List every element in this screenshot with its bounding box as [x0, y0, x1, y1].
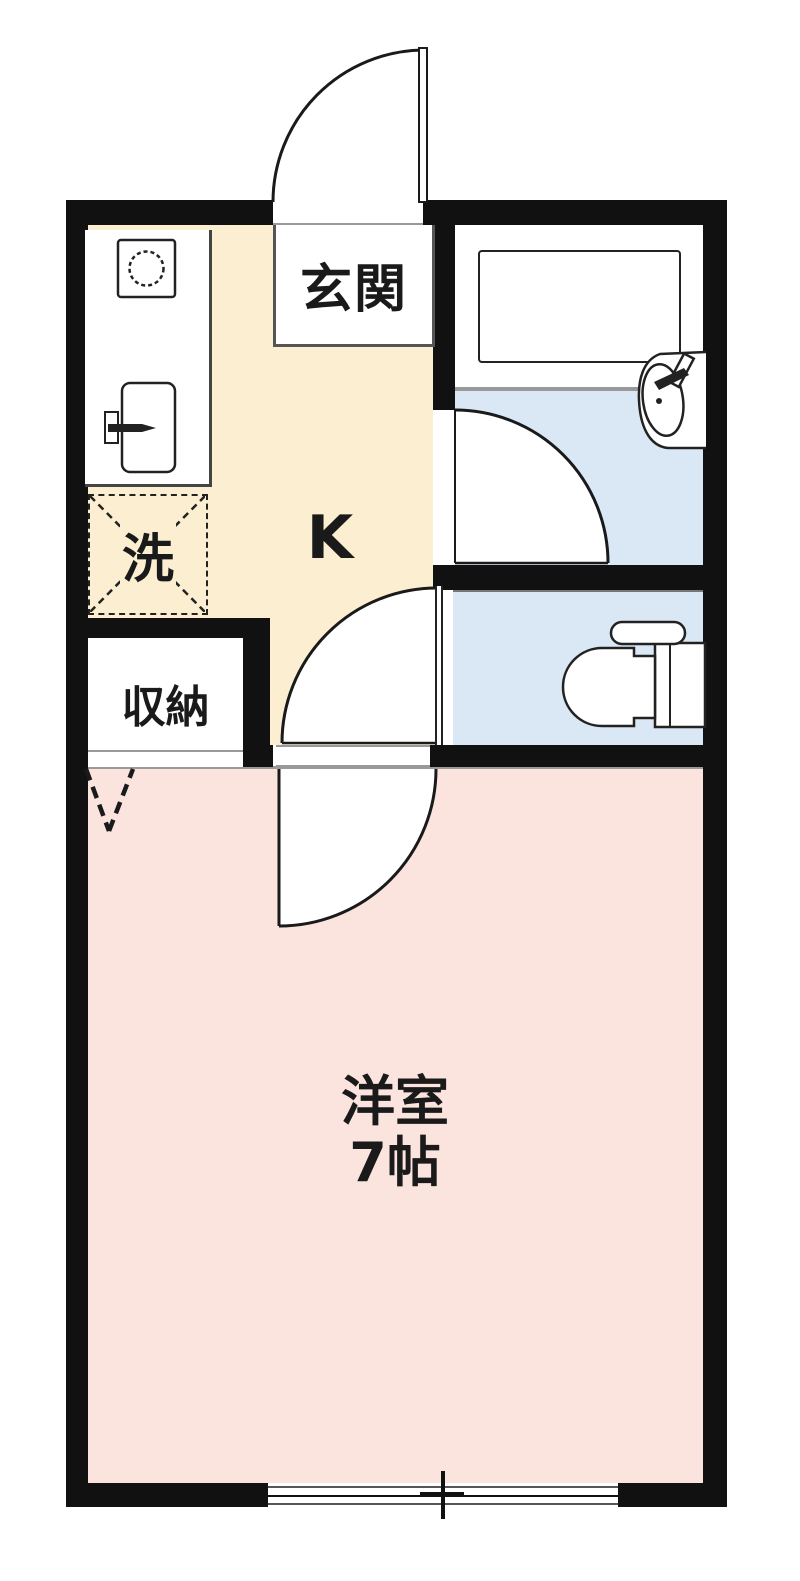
bathtub-icon: [478, 250, 681, 363]
storage-label: 収納: [122, 671, 210, 735]
folding-door-mark: [80, 764, 144, 840]
laundry-label-wrap: 洗: [90, 496, 206, 613]
entrance-hall: 玄関: [273, 225, 435, 347]
western-room-label: 洋室: [250, 1072, 540, 1132]
bath-door-swing: [451, 406, 611, 568]
entrance-label: 玄関: [300, 247, 408, 322]
wall-bath-left: [433, 225, 455, 410]
wall-top-left: [66, 200, 273, 225]
wall-storage-top: [66, 618, 267, 638]
room-door-swing: [274, 765, 440, 931]
storage-closet: 収納: [88, 638, 243, 767]
toilet-icon: [556, 612, 708, 734]
entrance-door-swing: [269, 46, 429, 206]
western-room-size-label: 7帖: [250, 1132, 540, 1194]
wall-bottom-right: [618, 1483, 727, 1507]
western-room-label-block: 洋室 7帖: [250, 1072, 540, 1202]
kitchen-label-wrap: K: [270, 488, 390, 588]
wall-bath-toilet-divider: [433, 565, 707, 590]
wall-top-right: [423, 200, 727, 225]
kitchen-sink-icon: [100, 378, 180, 478]
laundry-space: 洗: [88, 494, 208, 615]
washbasin-icon: [636, 348, 708, 452]
kitchen-room-doorway: [276, 745, 430, 767]
toilet-door-leaf: [435, 586, 443, 745]
floor-plan: 玄関 洗 収納: [0, 0, 800, 1581]
laundry-label: 洗: [120, 517, 176, 592]
kitchen-label: K: [307, 503, 354, 573]
wall-kitchen-bottom-piece: [243, 745, 273, 767]
wall-under-toilet: [430, 745, 707, 767]
storage-front-line: [88, 750, 243, 752]
wall-bottom-left: [66, 1483, 268, 1507]
window-slider-dash: [420, 1492, 464, 1496]
toilet-door-swing: [278, 584, 442, 748]
stove-icon: [114, 236, 180, 302]
